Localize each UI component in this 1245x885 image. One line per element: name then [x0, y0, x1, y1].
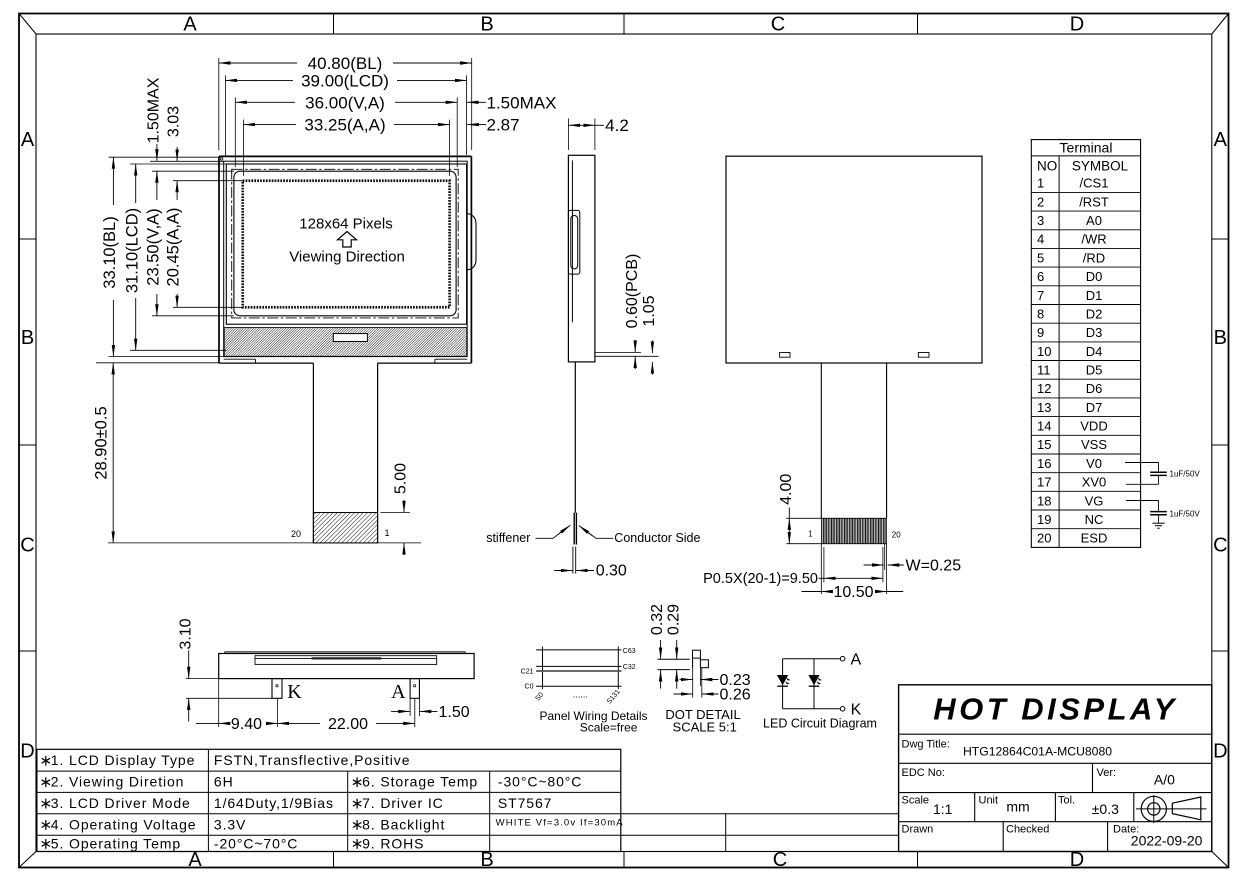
svg-text:10.50: 10.50: [833, 584, 873, 601]
svg-text:EDC No:: EDC No:: [902, 767, 945, 779]
svg-text:1.05: 1.05: [641, 295, 658, 326]
svg-text:Tol.: Tol.: [1058, 795, 1075, 807]
svg-text:stiffener: stiffener: [486, 531, 530, 545]
svg-text:NC: NC: [1085, 512, 1104, 527]
svg-text:1: 1: [808, 530, 813, 539]
svg-text:Dwg Title:: Dwg Title:: [902, 739, 950, 751]
svg-text:0.30: 0.30: [596, 562, 627, 579]
svg-text:C32: C32: [623, 664, 636, 671]
svg-text:33.25(A,A): 33.25(A,A): [304, 116, 385, 135]
svg-text:A: A: [183, 14, 197, 36]
svg-text:C: C: [771, 14, 785, 36]
svg-text:C: C: [773, 849, 787, 871]
svg-text:20: 20: [1037, 531, 1051, 546]
svg-text:33.10(BL): 33.10(BL): [101, 216, 119, 288]
svg-text:1.50MAX: 1.50MAX: [487, 93, 557, 112]
svg-text:6H: 6H: [214, 774, 234, 790]
svg-text:D: D: [1070, 849, 1084, 871]
svg-text:SCALE 5:1: SCALE 5:1: [673, 720, 737, 735]
svg-text:-20°C~70°C: -20°C~70°C: [214, 835, 298, 851]
svg-text:Scale: Scale: [902, 795, 930, 807]
svg-text:13: 13: [1037, 400, 1051, 415]
svg-text:D3: D3: [1086, 325, 1103, 340]
svg-text:Viewing Direction: Viewing Direction: [289, 249, 405, 266]
svg-text:36.00(V,A): 36.00(V,A): [305, 93, 385, 112]
svg-text:HOT DISPLAY: HOT DISPLAY: [933, 692, 1178, 727]
svg-text:SYMBOL: SYMBOL: [1072, 158, 1129, 173]
svg-text:/RD: /RD: [1083, 250, 1105, 265]
svg-text:14: 14: [1037, 419, 1051, 434]
svg-text:2: 2: [1037, 194, 1044, 209]
svg-text:D6: D6: [1086, 381, 1103, 396]
svg-text:VDD: VDD: [1080, 419, 1107, 434]
svg-text:NO: NO: [1037, 158, 1057, 173]
svg-text:D2: D2: [1086, 306, 1103, 321]
svg-text:12: 12: [1037, 381, 1051, 396]
svg-text:3.03: 3.03: [166, 106, 183, 137]
svg-text:FSTN,Transflective,Positive: FSTN,Transflective,Positive: [214, 752, 411, 768]
svg-text:K: K: [287, 681, 302, 703]
svg-text:±0.3: ±0.3: [1092, 801, 1119, 817]
svg-text:D5: D5: [1086, 363, 1103, 378]
svg-text:3.10: 3.10: [177, 618, 194, 649]
svg-text:......: ......: [573, 690, 588, 700]
svg-text:28.90±0.5: 28.90±0.5: [92, 406, 110, 479]
svg-text:VSS: VSS: [1081, 437, 1107, 452]
svg-text:A: A: [188, 849, 202, 871]
svg-text:D7: D7: [1086, 400, 1103, 415]
svg-text:16: 16: [1037, 456, 1051, 471]
svg-text:D4: D4: [1086, 344, 1103, 359]
svg-text:4: 4: [1037, 232, 1044, 247]
svg-text:1.50: 1.50: [439, 704, 470, 721]
svg-text:D0: D0: [1086, 269, 1103, 284]
svg-text:31.10(LCD): 31.10(LCD): [123, 208, 141, 293]
svg-text:15: 15: [1037, 437, 1051, 452]
svg-text:6. Storage Temp: 6. Storage Temp: [362, 774, 478, 790]
svg-text:1: 1: [385, 528, 390, 538]
svg-text:4.00: 4.00: [778, 474, 795, 505]
svg-text:A: A: [21, 129, 35, 151]
svg-text:5.00: 5.00: [393, 463, 410, 494]
svg-text:10: 10: [1037, 344, 1051, 359]
svg-text:B: B: [21, 327, 34, 349]
svg-text:WHITE Vf=3.0v If=30mA: WHITE Vf=3.0v If=30mA: [496, 817, 624, 828]
svg-text:23.50(V,A): 23.50(V,A): [145, 208, 163, 285]
svg-text:0.26: 0.26: [720, 687, 751, 704]
svg-text:8. Backlight: 8. Backlight: [362, 816, 445, 832]
svg-text:0.60(PCB): 0.60(PCB): [624, 254, 641, 329]
svg-text:4. Operating Voltage: 4. Operating Voltage: [51, 816, 197, 832]
svg-text:0.29: 0.29: [665, 604, 682, 635]
svg-text:V0: V0: [1086, 456, 1102, 471]
svg-text:1. LCD Display Type: 1. LCD Display Type: [51, 752, 195, 768]
svg-text:17: 17: [1037, 475, 1051, 490]
svg-text:7: 7: [1037, 288, 1044, 303]
svg-text:A0: A0: [1086, 213, 1102, 228]
svg-text:A: A: [1214, 129, 1228, 151]
svg-text:/CS1: /CS1: [1080, 176, 1109, 191]
svg-text:HTG12864C01A-MCU8080: HTG12864C01A-MCU8080: [963, 744, 1112, 758]
svg-text:C21: C21: [521, 669, 534, 676]
svg-text:Checked: Checked: [1006, 824, 1049, 836]
svg-text:9. ROHS: 9. ROHS: [362, 835, 424, 851]
svg-text:1.50MAX: 1.50MAX: [146, 77, 163, 143]
svg-text:C: C: [20, 535, 34, 557]
svg-text:6: 6: [1037, 269, 1044, 284]
svg-text:3.3V: 3.3V: [214, 816, 246, 832]
svg-text:/WR: /WR: [1081, 232, 1106, 247]
svg-text:A: A: [391, 681, 406, 703]
svg-text:20.45(A,A): 20.45(A,A): [165, 208, 183, 287]
svg-text:2.87: 2.87: [487, 116, 520, 135]
svg-text:B: B: [480, 849, 493, 871]
svg-text:19: 19: [1037, 512, 1051, 527]
svg-text:LED Circuit Diagram: LED Circuit Diagram: [763, 716, 877, 730]
svg-text:P0.5X(20-1)=9.50: P0.5X(20-1)=9.50: [703, 571, 818, 587]
svg-text:mm: mm: [1006, 799, 1029, 815]
svg-text:Terminal: Terminal: [1060, 139, 1113, 155]
svg-text:ESD: ESD: [1081, 531, 1108, 546]
svg-text:1: 1: [1037, 176, 1044, 191]
svg-text:D: D: [1070, 14, 1084, 36]
svg-text:B: B: [1214, 327, 1227, 349]
svg-text:1/64Duty,1/9Bias: 1/64Duty,1/9Bias: [214, 795, 334, 811]
svg-text:2022-09-20: 2022-09-20: [1131, 833, 1203, 849]
svg-text:4.2: 4.2: [605, 116, 629, 135]
svg-text:40.80(BL): 40.80(BL): [308, 54, 383, 73]
svg-text:8: 8: [1037, 306, 1044, 321]
svg-text:W=0.25: W=0.25: [906, 558, 962, 575]
svg-text:A/0: A/0: [1154, 772, 1175, 788]
svg-text:Conductor Side: Conductor Side: [614, 531, 700, 545]
svg-text:Scale=free: Scale=free: [580, 721, 638, 735]
svg-text:XV0: XV0: [1082, 475, 1107, 490]
svg-text:D1: D1: [1086, 288, 1103, 303]
svg-text:5. Operating Temp: 5. Operating Temp: [51, 835, 181, 851]
svg-text:22.00: 22.00: [328, 716, 368, 733]
svg-text:VG: VG: [1085, 493, 1104, 508]
svg-text:9: 9: [1037, 325, 1044, 340]
svg-text:9.40: 9.40: [231, 716, 262, 733]
svg-text:B: B: [480, 14, 493, 36]
svg-text:1uF/50V: 1uF/50V: [1170, 510, 1201, 519]
svg-text:Unit: Unit: [979, 795, 999, 807]
svg-text:1uF/50V: 1uF/50V: [1170, 470, 1201, 479]
svg-text:/RST: /RST: [1079, 194, 1109, 209]
svg-text:C0: C0: [525, 684, 534, 691]
svg-text:ST7567: ST7567: [498, 795, 552, 811]
svg-text:A: A: [850, 651, 861, 668]
svg-text:3: 3: [1037, 213, 1044, 228]
svg-text:-30°C~80°C: -30°C~80°C: [498, 774, 582, 790]
svg-text:5: 5: [1037, 250, 1044, 265]
svg-text:11: 11: [1037, 363, 1051, 378]
svg-text:20: 20: [892, 531, 901, 540]
svg-text:3. LCD Driver Mode: 3. LCD Driver Mode: [51, 795, 191, 811]
svg-text:C63: C63: [623, 648, 636, 655]
svg-text:39.00(LCD): 39.00(LCD): [301, 71, 389, 90]
svg-text:0.32: 0.32: [649, 604, 666, 635]
svg-text:18: 18: [1037, 493, 1051, 508]
svg-text:1:1: 1:1: [933, 801, 953, 817]
svg-text:D: D: [20, 741, 34, 763]
svg-text:Ver:: Ver:: [1097, 767, 1117, 779]
svg-text:2. Viewing Diretion: 2. Viewing Diretion: [51, 774, 185, 790]
svg-text:7. Driver IC: 7. Driver IC: [362, 795, 444, 811]
svg-text:20: 20: [291, 529, 301, 539]
svg-text:C: C: [1213, 535, 1227, 557]
svg-text:D: D: [1213, 741, 1227, 763]
svg-text:Drawn: Drawn: [902, 824, 934, 836]
svg-text:128x64 Pixels: 128x64 Pixels: [299, 216, 392, 233]
